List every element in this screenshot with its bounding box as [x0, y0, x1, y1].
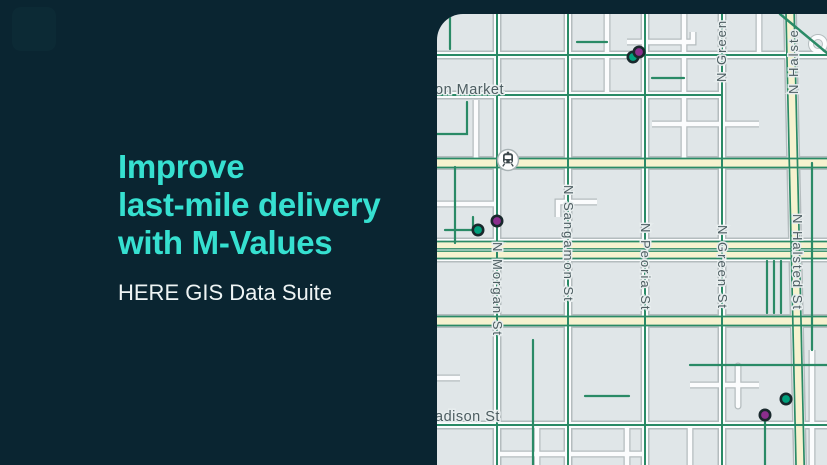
title-line-1: Improve: [118, 148, 458, 186]
delivery-point-marker-purple[interactable]: [492, 216, 502, 226]
page-title: Improve last-mile delivery with M-Values: [118, 148, 458, 262]
delivery-point-marker-purple[interactable]: [760, 410, 770, 420]
street-label: on Market: [437, 82, 504, 98]
street-map: on Market adison St N Morgan St N Sangam…: [437, 14, 827, 465]
here-logo-watermark: [12, 7, 56, 51]
delivery-point-marker-teal[interactable]: [473, 225, 483, 235]
slide-canvas: Improve last-mile delivery with M-Values…: [0, 0, 827, 465]
title-line-3: with M-Values: [118, 224, 458, 262]
transit-station-icon[interactable]: [498, 150, 519, 171]
street-label: N Sangamon St: [561, 185, 576, 303]
delivery-point-marker-purple[interactable]: [634, 47, 644, 57]
street-label: adison St: [437, 409, 500, 425]
street-label: N Halsted St: [790, 214, 805, 311]
street-label: N Halste: [786, 28, 801, 94]
product-subtitle: HERE GIS Data Suite: [118, 280, 458, 306]
street-label: N Green St: [715, 225, 730, 310]
delivery-point-marker-teal[interactable]: [781, 394, 791, 404]
map-panel[interactable]: on Market adison St N Morgan St N Sangam…: [437, 14, 827, 465]
hero-text-block: Improve last-mile delivery with M-Values…: [118, 148, 458, 306]
street-label: N Morgan St: [490, 242, 505, 337]
street-label: N Peoria St: [638, 223, 653, 311]
street-label: N Green: [714, 19, 729, 82]
title-line-2: last-mile delivery: [118, 186, 458, 224]
